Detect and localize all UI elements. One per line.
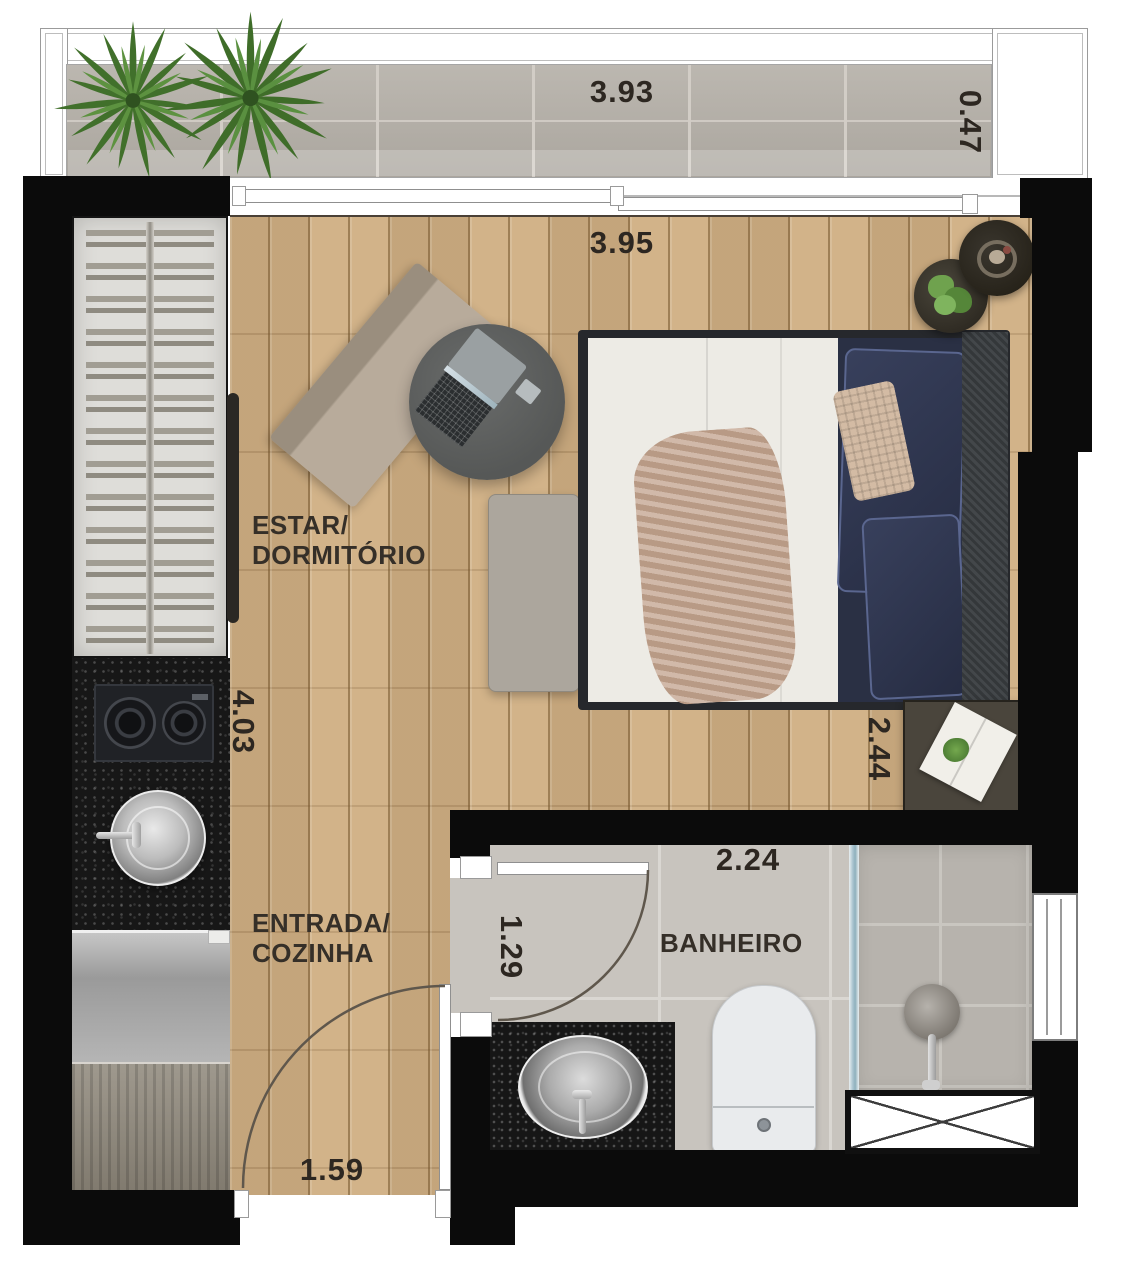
flush-button bbox=[757, 1118, 771, 1132]
bathroom-door-panel bbox=[497, 862, 649, 875]
door-jamb bbox=[435, 1190, 451, 1218]
wall-bathroom-left-lower bbox=[450, 1037, 490, 1152]
wall-bathroom-bottom bbox=[450, 1150, 1078, 1207]
toilet-icon bbox=[712, 985, 816, 1153]
wall-right-mid bbox=[1018, 452, 1078, 815]
shaft-icon bbox=[845, 1090, 1040, 1154]
wall-bathroom-top bbox=[450, 810, 1078, 845]
dim-living-height: 4.03 bbox=[225, 690, 261, 754]
window-icon bbox=[1032, 893, 1078, 1041]
room-label-entry: ENTRADA/ COZINHA bbox=[252, 908, 390, 968]
shower-floor bbox=[855, 845, 1032, 1093]
window-end-cap bbox=[232, 186, 246, 206]
refrigerator-handle bbox=[208, 930, 230, 944]
throw-blanket bbox=[631, 425, 800, 707]
entry-door-panel bbox=[439, 984, 451, 1190]
closet-door-pull bbox=[227, 393, 239, 623]
burner bbox=[104, 697, 156, 749]
window-end-cap bbox=[962, 194, 978, 214]
sliding-door-band bbox=[230, 178, 1034, 215]
room-label-living: ESTAR/ DORMITÓRIO bbox=[252, 510, 426, 570]
wall-right-upper bbox=[1032, 215, 1092, 452]
bed-icon bbox=[578, 330, 1010, 710]
shower-head-icon bbox=[904, 984, 960, 1040]
refrigerator bbox=[72, 930, 230, 1062]
sliding-glass-panel bbox=[238, 189, 624, 203]
window-end-cap bbox=[610, 186, 624, 206]
bench bbox=[488, 494, 580, 692]
balcony-railing-right bbox=[992, 28, 1088, 180]
shower-arm bbox=[928, 1034, 936, 1086]
closet bbox=[72, 216, 228, 658]
sliding-glass-panel bbox=[618, 197, 970, 211]
wall-bottom-step bbox=[450, 1150, 515, 1245]
shower-arm bbox=[922, 1080, 940, 1090]
room-label-living-line1: ESTAR/ bbox=[252, 510, 426, 540]
cooktop-icon bbox=[94, 684, 214, 762]
door-jamb bbox=[460, 856, 492, 879]
palm-plant-icon bbox=[158, 8, 343, 188]
shower-glass-partition bbox=[849, 845, 859, 1093]
floor-plan: 3.93 0.47 3.95 4.03 2.44 2.24 1.29 1.59 … bbox=[0, 0, 1128, 1280]
dim-balcony-width: 3.93 bbox=[590, 74, 654, 110]
bathroom-faucet-icon bbox=[579, 1098, 586, 1134]
kitchen-faucet-icon bbox=[132, 822, 141, 848]
room-label-bathroom: BANHEIRO bbox=[660, 928, 803, 958]
wall-top-right-header bbox=[1020, 178, 1092, 218]
wall-bottom-left bbox=[23, 1190, 240, 1245]
room-label-living-line2: DORMITÓRIO bbox=[252, 540, 426, 570]
dim-living-width: 3.95 bbox=[590, 225, 654, 261]
room-label-entry-line1: ENTRADA/ bbox=[252, 908, 390, 938]
dim-side-table: 2.44 bbox=[861, 717, 897, 781]
bathroom-faucet-icon bbox=[572, 1090, 592, 1099]
dim-balcony-depth: 0.47 bbox=[952, 90, 988, 154]
door-jamb bbox=[234, 1190, 249, 1218]
bathroom-door-opening bbox=[450, 878, 490, 1013]
nightstand-decor bbox=[959, 220, 1035, 296]
kitchen-cabinet bbox=[72, 1062, 230, 1192]
corner-side-table bbox=[903, 700, 1035, 812]
entry-corridor-floor bbox=[230, 815, 450, 1195]
navy-pillow bbox=[861, 514, 968, 701]
wall-left bbox=[23, 176, 72, 1245]
room-label-entry-line2: COZINHA bbox=[252, 938, 390, 968]
wall-bathroom-right-upper bbox=[1032, 815, 1078, 895]
headboard bbox=[962, 332, 1008, 710]
dim-entry-door: 1.59 bbox=[300, 1152, 364, 1188]
burner bbox=[162, 701, 206, 745]
dim-bathroom-depth: 1.29 bbox=[493, 915, 529, 979]
door-jamb bbox=[460, 1012, 492, 1037]
dim-bathroom-width: 2.24 bbox=[716, 842, 780, 878]
closet-rod bbox=[146, 222, 154, 654]
cooktop-controls bbox=[192, 694, 208, 700]
